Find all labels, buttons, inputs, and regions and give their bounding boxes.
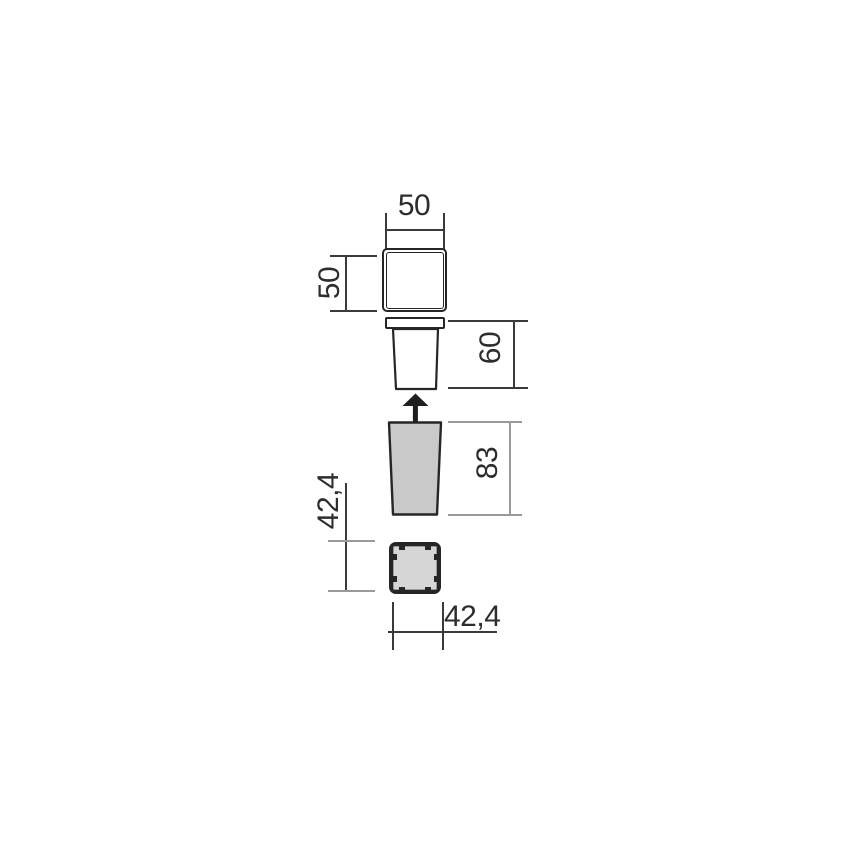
arrow-up-icon [403,394,429,422]
mounting-clip [393,554,397,560]
body-height-dimension-line [513,320,515,388]
mounting-clip [434,576,438,582]
box-depth-dimension-label: 42,4 [314,458,346,544]
box-width-extension-line-left [392,602,394,650]
box-depth-dimension-line [345,483,347,590]
mounting-clip [399,587,405,591]
installation-sleeve-side-view [389,423,441,515]
fixture-shapes [0,0,868,868]
mounting-clip [434,554,438,560]
box-depth-extension-line-top [328,540,375,542]
sleeve-height-dimension-line [509,421,511,515]
mounting-clip [393,576,397,582]
body-height-dimension-label: 60 [476,318,506,378]
mounting-clip [425,587,431,591]
box-width-extension-line-right [442,602,444,650]
sleeve-height-extension-line-top [448,421,522,423]
box-depth-extension-line-bottom [328,590,375,592]
mounting-box-top-view [389,542,441,594]
mounting-clip [399,546,405,550]
box-width-dimension-label: 42,4 [444,602,524,632]
body-height-extension-line-top [448,320,528,322]
body-height-extension-line-bottom [448,387,528,389]
sleeve-height-extension-line-bottom [448,514,522,516]
sleeve-height-dimension-label: 83 [473,433,503,493]
fixture-body-side-view [393,329,438,389]
mounting-clip [425,546,431,550]
mounting-box-opening [393,546,437,590]
dimension-drawing: 50 50 60 83 42,4 [0,0,868,868]
